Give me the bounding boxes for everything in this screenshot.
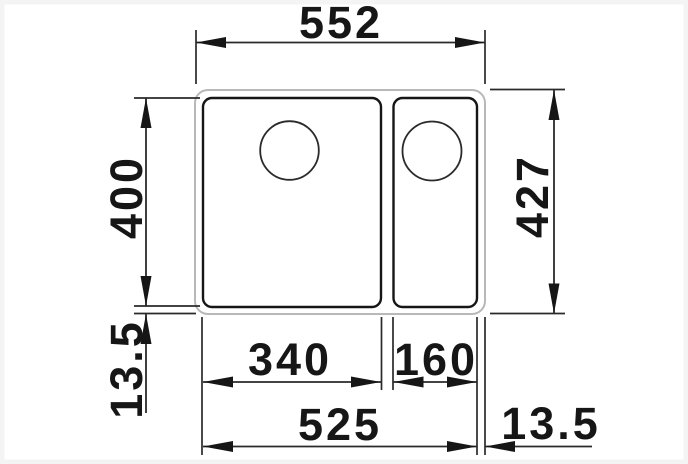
small-bowl-outline	[394, 98, 478, 307]
arrowhead	[196, 37, 226, 48]
arrowhead	[141, 276, 152, 306]
main-bowl-outline	[203, 98, 381, 307]
sink-dimension-drawing: 552 400 13.5 427 340 160	[0, 0, 688, 464]
arrowhead	[203, 441, 233, 452]
technical-drawing-page: 552 400 13.5 427 340 160	[0, 0, 688, 464]
dim-small-bowl-width-label: 160	[394, 334, 478, 385]
arrowhead	[455, 37, 485, 48]
arrowhead	[351, 377, 381, 388]
dim-rim-offset-left-label: 13.5	[101, 319, 152, 419]
main-bowl-drain-circle	[260, 121, 319, 180]
dim-rim-offset-right-label: 13.5	[501, 398, 601, 449]
dim-bowls-span-label: 525	[298, 399, 382, 450]
arrowhead	[141, 98, 152, 128]
dim-main-bowl-width-label: 340	[248, 334, 332, 385]
dim-overall-depth-label: 427	[507, 154, 558, 238]
arrowhead	[549, 284, 560, 314]
dim-bowl-depth-label: 400	[101, 155, 152, 239]
arrowhead	[203, 377, 233, 388]
arrowhead	[549, 90, 560, 120]
small-bowl-drain-circle	[403, 122, 462, 181]
dim-overall-width-label: 552	[299, 0, 383, 48]
arrowhead	[447, 441, 477, 452]
